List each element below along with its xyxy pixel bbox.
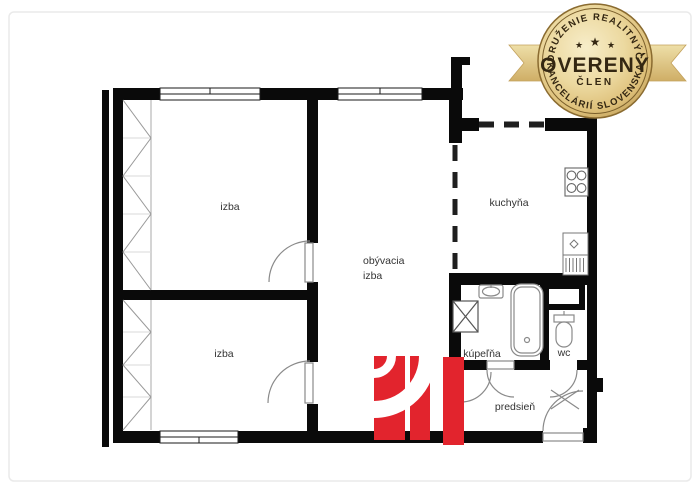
bathtub bbox=[511, 284, 543, 356]
badge-star-icon: ★ bbox=[607, 40, 615, 50]
agency-logo bbox=[374, 356, 464, 445]
label-room-bottom: izba bbox=[214, 348, 233, 360]
washing-machine bbox=[453, 301, 478, 332]
door-top-room bbox=[269, 241, 313, 282]
window-top-left bbox=[160, 88, 260, 100]
stove bbox=[565, 168, 588, 196]
label-hallway: predsieň bbox=[495, 401, 535, 413]
badge-title: OVERENÝ bbox=[540, 53, 650, 77]
window-top-center bbox=[338, 88, 422, 100]
wardrobes bbox=[123, 100, 151, 430]
door-bottom-room bbox=[268, 361, 313, 403]
wardrobe-top-room bbox=[123, 100, 151, 290]
walls bbox=[102, 57, 603, 447]
wardrobe-bottom-room bbox=[123, 300, 151, 430]
badge-subtitle: ČLEN bbox=[576, 75, 613, 88]
door-bathroom bbox=[487, 361, 514, 397]
kitchen-sink bbox=[563, 233, 588, 275]
floor-plan-page: izba izba obývacia izba kuchyňa kúpeľňa … bbox=[0, 0, 700, 495]
label-wc: wc bbox=[557, 347, 571, 359]
label-bathroom: kúpeľňa bbox=[463, 348, 501, 360]
window-bottom-left bbox=[160, 431, 238, 443]
badge-star-icon: ★ bbox=[575, 40, 583, 50]
label-living-room-line1: obývacia bbox=[363, 255, 405, 267]
installation-shaft bbox=[549, 289, 579, 304]
toilet bbox=[554, 311, 574, 347]
label-room-top: izba bbox=[220, 201, 239, 213]
badge-star-icon: ★ bbox=[590, 35, 601, 49]
washbasin bbox=[479, 285, 503, 298]
label-living-room-line2: izba bbox=[363, 270, 382, 282]
label-kitchen: kuchyňa bbox=[489, 197, 528, 209]
